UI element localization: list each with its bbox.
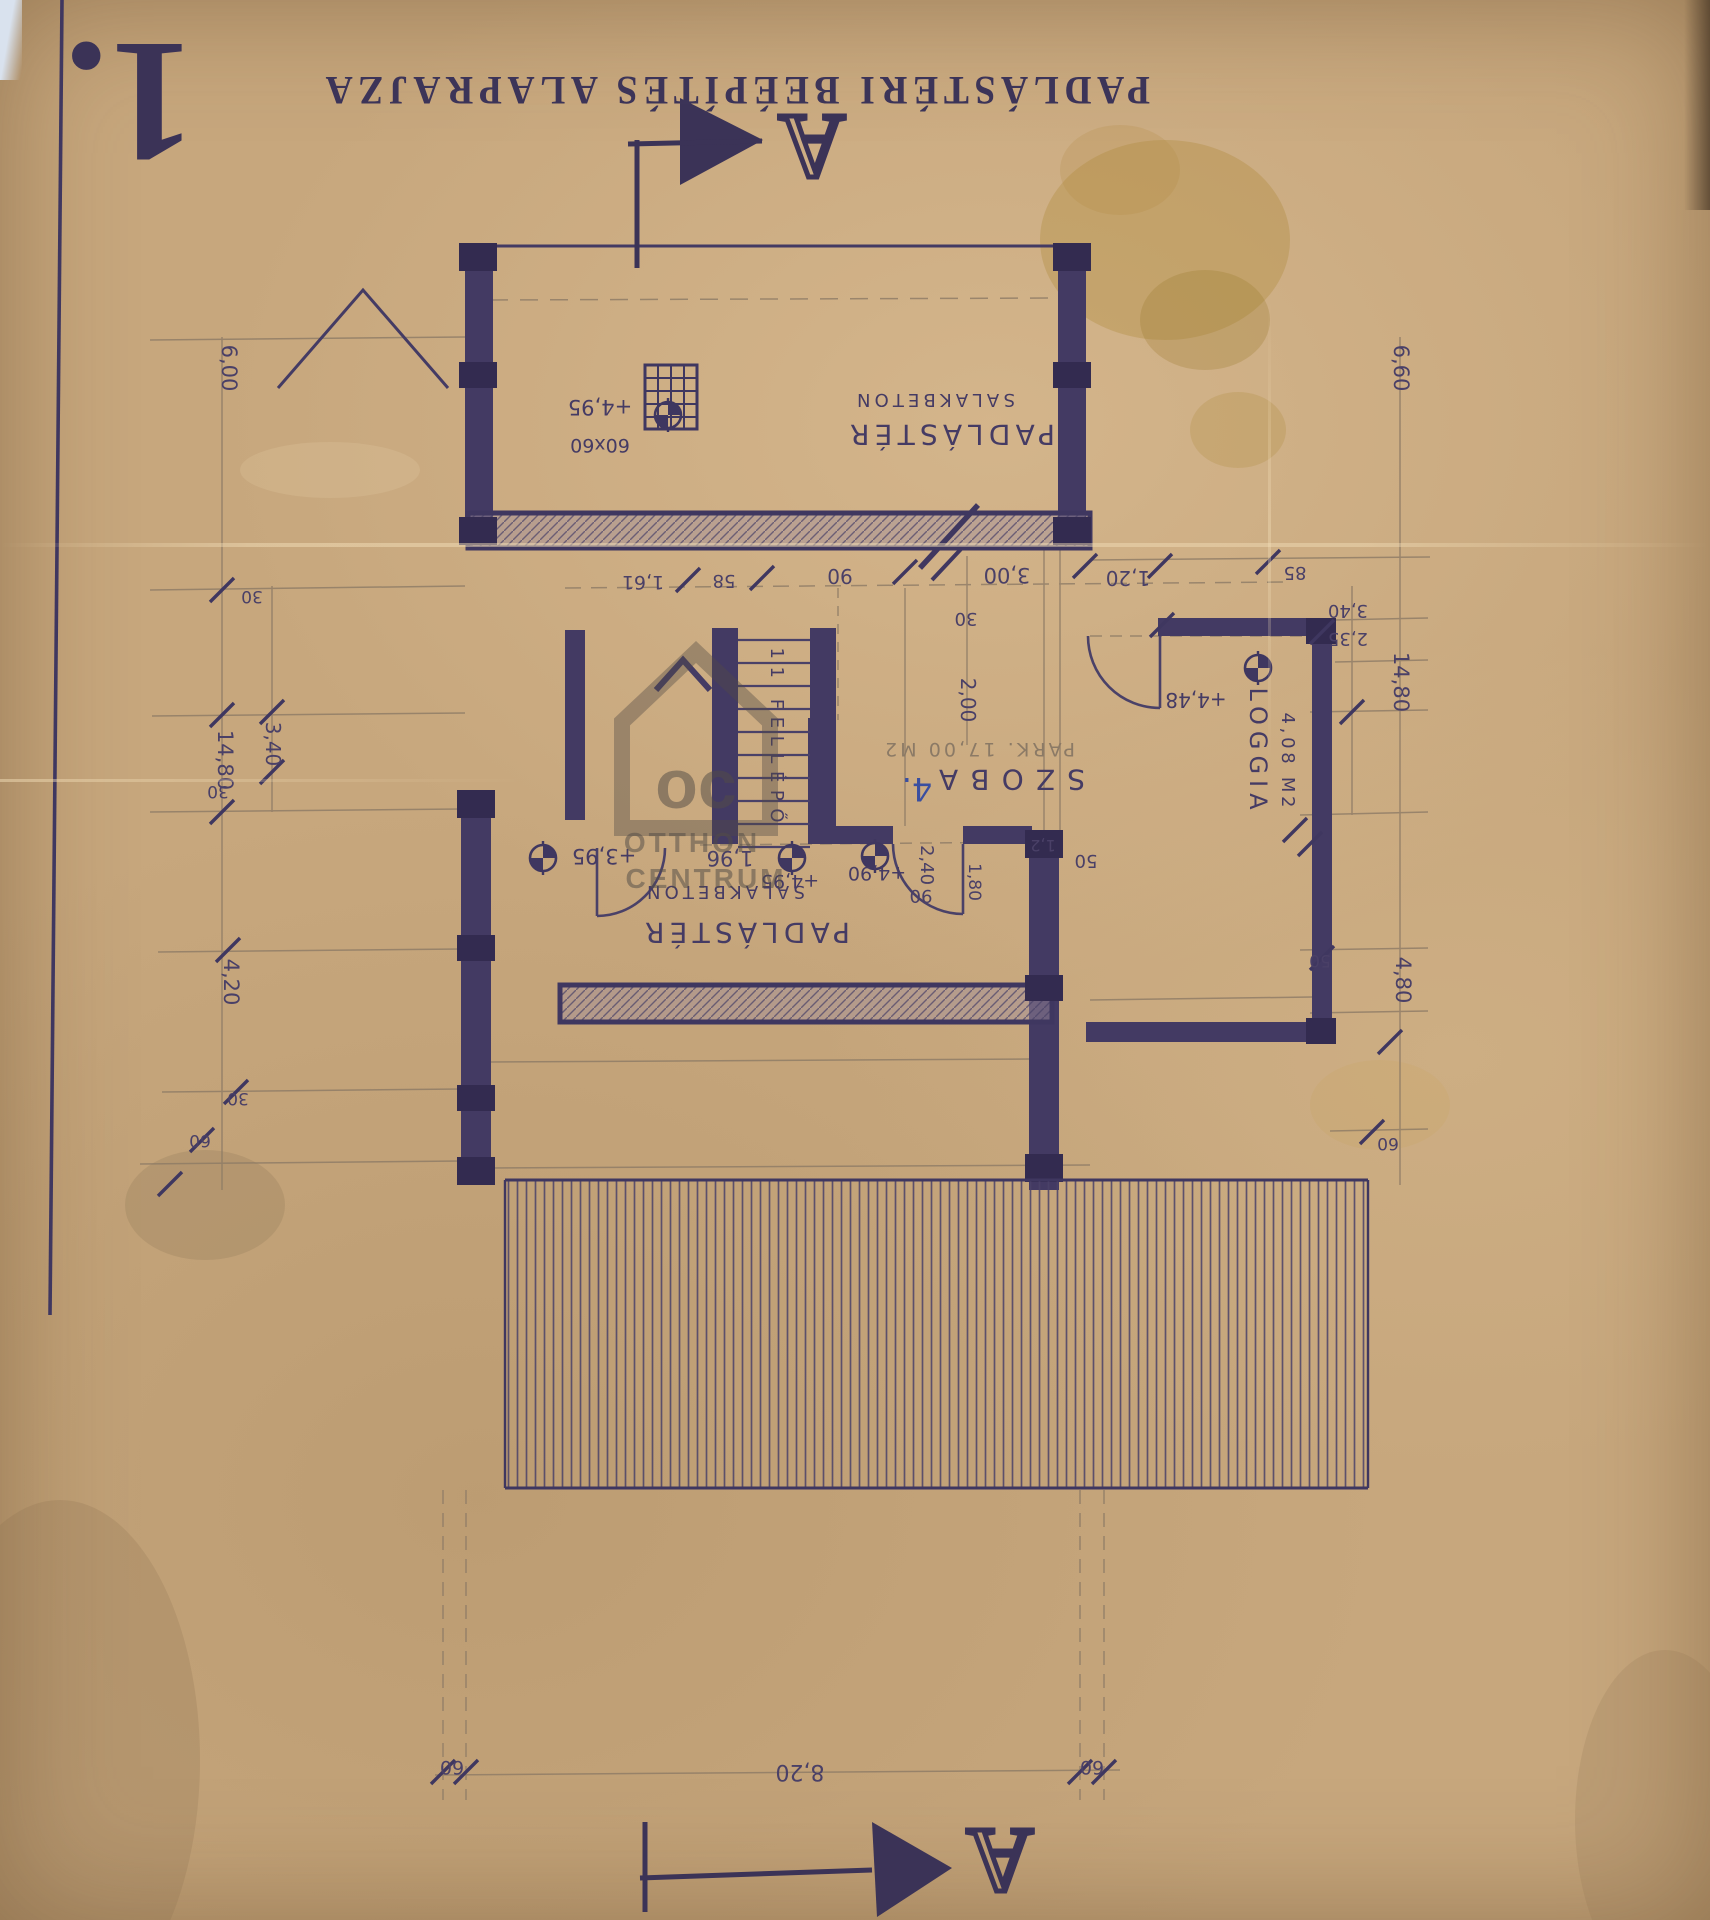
dim: 4,20 — [219, 959, 243, 1006]
watermark-line2: CENTRUM — [626, 863, 787, 894]
margin-line — [50, 0, 62, 1315]
dim: 1,61 — [622, 571, 664, 593]
dim: 3,40 — [1328, 600, 1368, 621]
terrace-hatch — [505, 1180, 1368, 1488]
dim: 1,20 — [1106, 566, 1151, 590]
dim: 30 — [227, 1088, 249, 1108]
crease-vertical — [1268, 300, 1271, 760]
dim: 8,20 — [776, 1759, 825, 1784]
dim: 3,00 — [984, 563, 1031, 587]
room-loggia-area: 4,08 M2 — [1277, 713, 1298, 808]
section-label-bottom: A — [967, 1810, 1033, 1912]
section-arrow-top: A — [628, 96, 845, 268]
watermark-line1: OTTHON — [624, 827, 760, 858]
dim: 1,80 — [964, 863, 984, 901]
paper-edge-blue-sliver — [0, 0, 22, 80]
room-szoba-flooring: PARK. 17,00 M2 — [885, 738, 1075, 760]
drawing-title: PADLÁSTÉRI BEÉPÍTÉS ALAPRAJZA — [320, 68, 1150, 113]
dim: 2,35 — [1328, 628, 1368, 649]
dim: 90 — [827, 564, 852, 588]
watermark-monogram: oc — [655, 745, 737, 823]
dim: 58 — [713, 570, 736, 591]
dim: 30 — [955, 608, 978, 629]
crease-horizontal-2 — [0, 779, 520, 782]
skylight-label: 60x60 — [570, 434, 630, 456]
dim: 60 — [1377, 1133, 1399, 1153]
dim: 1,2 — [1030, 836, 1055, 855]
paper-edge-shadow-topright — [1684, 0, 1710, 210]
crease-horizontal — [0, 543, 1710, 547]
wall-posts — [457, 243, 1336, 1185]
dim: 2,00 — [956, 678, 980, 723]
room-szoba-name: SZOBA — [935, 763, 1085, 796]
level-upper: +4,95 — [568, 395, 632, 419]
dim: 50 — [1075, 850, 1098, 871]
level-szoba-b: +4,90 — [848, 862, 906, 884]
drawing-canvas: A A 1. PADLÁSTÉRI BEÉPÍTÉS ALAPRAJZA PAD… — [0, 0, 1710, 1920]
section-arrow-bottom-triangle — [872, 1822, 952, 1917]
dim: 6,00 — [217, 345, 241, 392]
dimension-texts: 1,61 58 90 3,00 1,20 85 30 2,00 2,40 90 … — [189, 345, 1415, 1784]
sheet-number: 1. — [64, 6, 195, 200]
dim: 60 — [189, 1130, 211, 1150]
skylight-symbol — [645, 365, 697, 429]
dim: 50 — [1309, 950, 1331, 970]
dim: 14,80 — [1389, 652, 1413, 712]
dim: 3,40 — [261, 722, 285, 767]
dim: 30 — [207, 781, 229, 801]
room-szoba-number: 4. — [902, 770, 933, 808]
dim: 6,60 — [1389, 345, 1413, 392]
dim: 30 — [241, 586, 263, 606]
building-walls — [461, 243, 1332, 1190]
dim: 2,40 — [916, 845, 937, 885]
dim: 90 — [910, 885, 933, 906]
room-attic-upper-floor: SALAKBETON — [855, 389, 1015, 410]
dim: 60 — [440, 1756, 464, 1778]
level-loggia: +4,48 — [1165, 688, 1226, 712]
room-attic-lower-name: PADLÁSTÉR — [640, 916, 850, 950]
dim: 85 — [1284, 562, 1307, 583]
blueprint-photo: A A 1. PADLÁSTÉRI BEÉPÍTÉS ALAPRAJZA PAD… — [0, 0, 1710, 1920]
dim: 4,80 — [1391, 957, 1415, 1004]
room-attic-upper-name: PADLÁSTÉR — [845, 418, 1055, 452]
section-arrow-bottom: A — [640, 1810, 1033, 1917]
watermark: oc OTTHON CENTRUM — [622, 652, 787, 894]
dim: 60 — [1080, 1756, 1104, 1778]
